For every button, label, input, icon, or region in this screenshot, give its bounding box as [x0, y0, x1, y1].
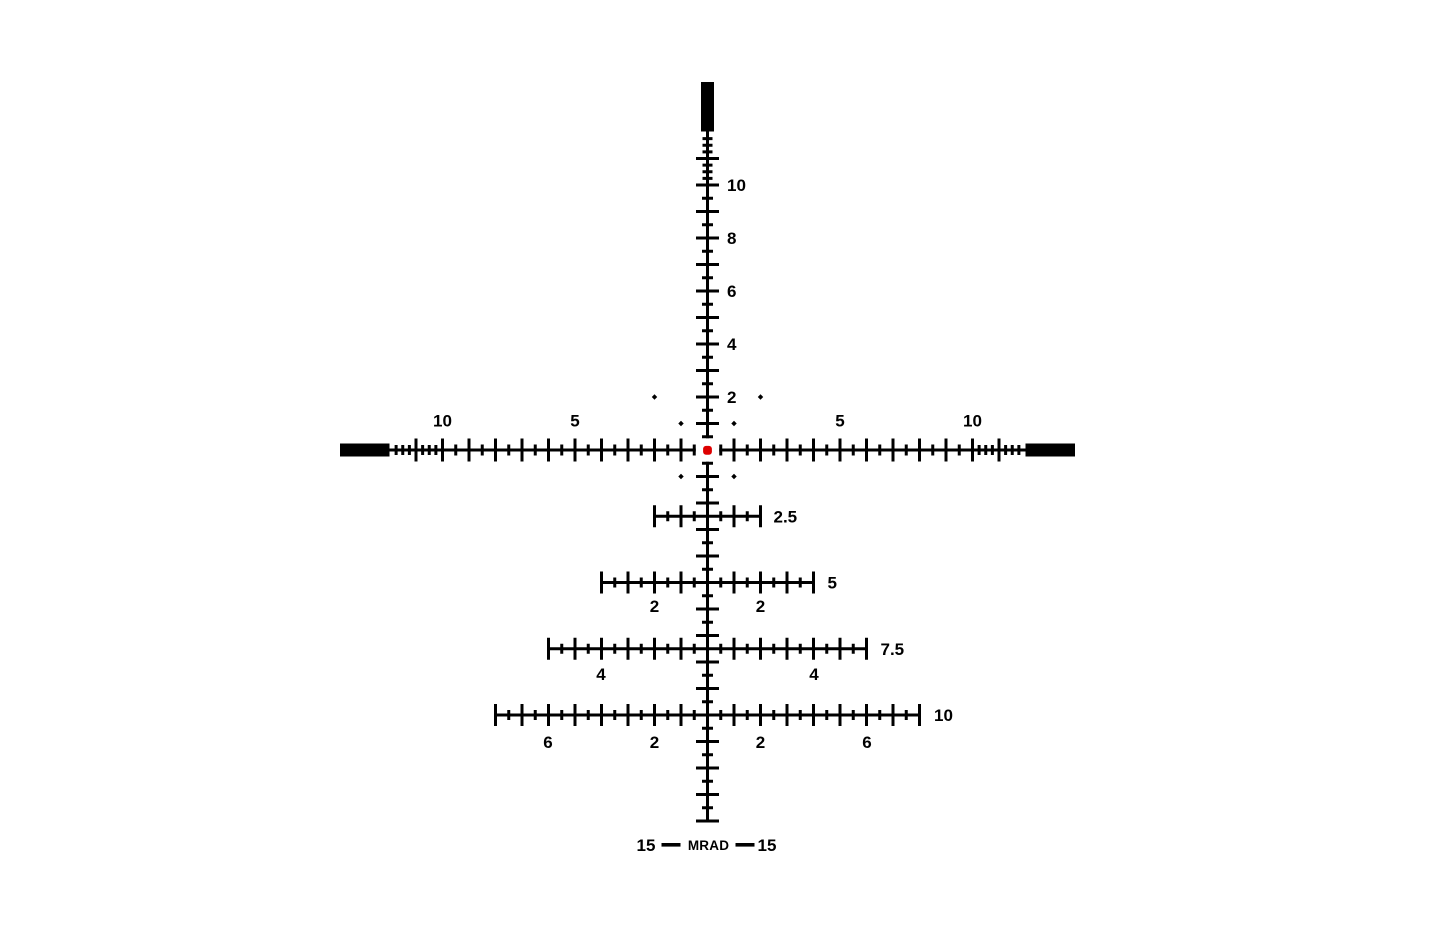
- svg-text:10: 10: [934, 706, 953, 725]
- svg-text:5: 5: [835, 412, 844, 431]
- svg-text:6: 6: [543, 733, 552, 752]
- svg-text:2: 2: [756, 597, 765, 616]
- svg-text:2.5: 2.5: [774, 507, 798, 526]
- svg-text:5: 5: [570, 412, 579, 431]
- svg-text:2: 2: [650, 597, 659, 616]
- svg-text:15: 15: [758, 836, 777, 855]
- svg-text:10: 10: [963, 412, 982, 431]
- svg-text:4: 4: [809, 665, 819, 684]
- svg-text:8: 8: [727, 229, 736, 248]
- svg-text:4: 4: [596, 665, 606, 684]
- svg-text:2: 2: [727, 388, 736, 407]
- svg-text:MRAD: MRAD: [688, 838, 729, 853]
- svg-text:2: 2: [756, 733, 765, 752]
- svg-text:7.5: 7.5: [881, 640, 905, 659]
- svg-text:6: 6: [862, 733, 871, 752]
- svg-text:2: 2: [650, 733, 659, 752]
- svg-text:4: 4: [727, 335, 737, 354]
- svg-text:15: 15: [637, 836, 656, 855]
- svg-text:10: 10: [727, 176, 746, 195]
- svg-text:10: 10: [433, 412, 452, 431]
- svg-text:6: 6: [727, 282, 736, 301]
- svg-text:5: 5: [828, 574, 837, 593]
